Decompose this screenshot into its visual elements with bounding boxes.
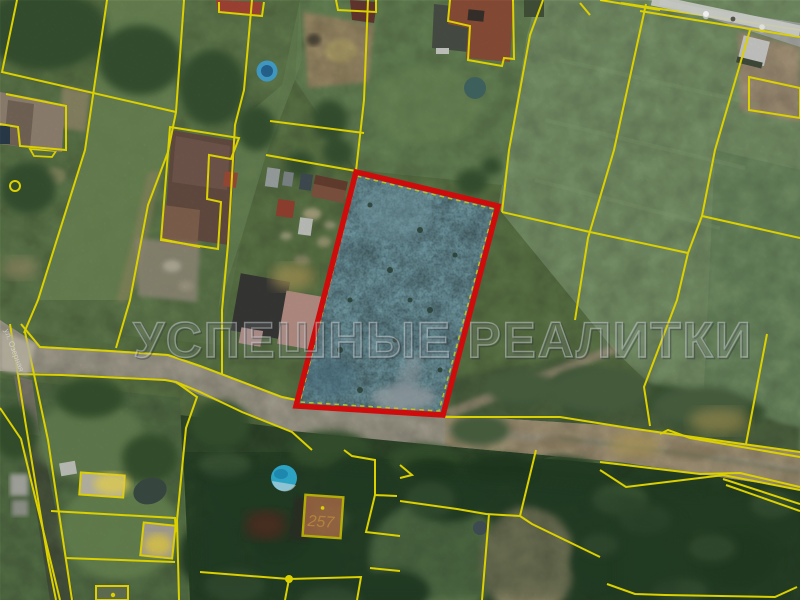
svg-text:УСПЕШНЫЕ РЕАЛИТКИ: УСПЕШНЫЕ РЕАЛИТКИ	[133, 312, 752, 368]
